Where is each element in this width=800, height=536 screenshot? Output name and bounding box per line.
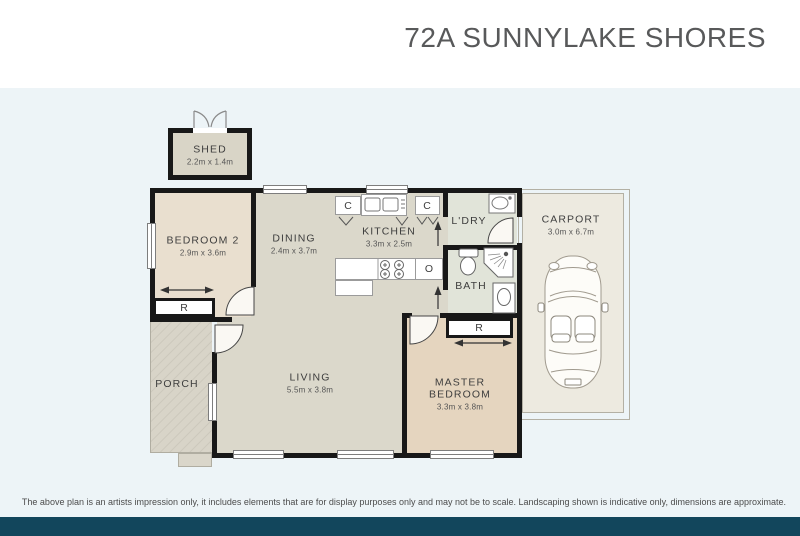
wall-segment [150,317,232,322]
wall-segment [150,188,522,193]
kitchen-sink-unit [361,194,407,216]
label-kitchen: KITCHEN 3.3m x 2.5m [362,226,416,249]
wall-segment [443,245,517,250]
window [366,185,408,194]
porch-step [178,453,212,467]
disclaimer-text: The above plan is an artists impression … [22,497,786,507]
label-carport: CARPORT 3.0m x 6.7m [542,214,601,237]
window [233,450,284,459]
wall-segment [443,250,448,290]
label-oven: O [425,263,433,275]
label-porch: PORCH [155,378,198,390]
label-robe-bedroom2: R [180,302,188,314]
wall-segment [443,193,448,217]
label-dining: DINING 2.4m x 3.7m [271,233,317,256]
kitchen-bench-return [335,280,373,296]
wall-segment [517,188,522,217]
wall-segment [402,318,407,453]
wall-segment [212,352,217,383]
label-living: LIVING 5.5m x 3.8m [287,372,333,395]
window [337,450,394,459]
floorplan-page: 72A SUNNYLAKE SHORES [0,0,800,536]
window [430,450,494,459]
window [208,383,217,421]
label-master-bedroom: MASTER BEDROOM 3.3m x 3.8m [414,377,506,412]
label-bedroom2: BEDROOM 2 2.9m x 3.6m [167,235,240,258]
wall-segment [251,188,256,287]
label-shed: SHED 2.2m x 1.4m [187,144,233,167]
label-robe-master: R [475,322,483,334]
label-bath: BATH [455,280,487,292]
page-title: 72A SUNNYLAKE SHORES [404,22,766,54]
window [147,223,156,269]
wall-segment [517,243,522,458]
label-cupboard-left: C [344,200,352,212]
bottom-bar [0,517,800,536]
window [263,185,307,194]
label-laundry: L'DRY [451,215,486,227]
label-cupboard-right: C [423,200,431,212]
